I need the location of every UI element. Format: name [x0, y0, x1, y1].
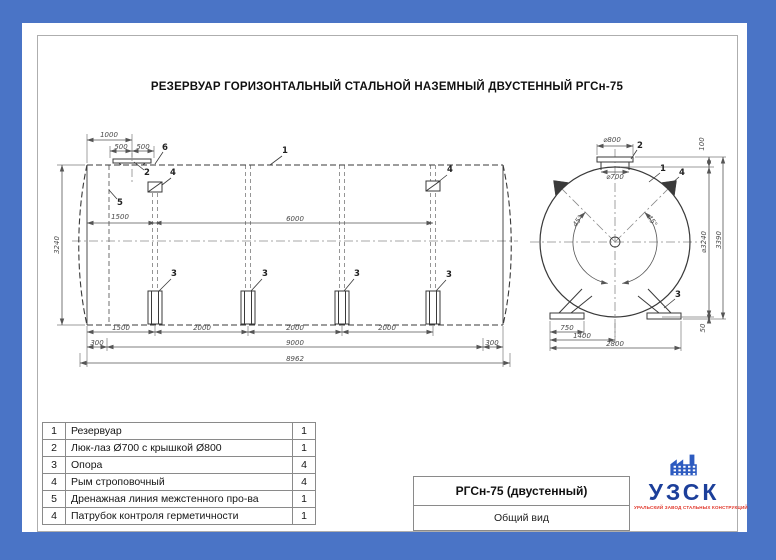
callout-2-manhole: 2 — [144, 168, 150, 178]
dim-d700: ⌀700 — [606, 173, 624, 181]
callout-5-drain-line: 5 — [117, 198, 123, 208]
table-row: 4 Патрубок контроля герметичности 1 — [43, 508, 316, 525]
callout-1-shell: 1 — [282, 146, 288, 156]
part-name: Дренажная линия межстенного про-ва — [66, 491, 293, 508]
dim-1400: 1400 — [573, 332, 591, 340]
dim-300-left: 300 — [90, 339, 103, 347]
dim-500-left: 500 — [114, 143, 127, 151]
part-name: Резервуар — [66, 423, 293, 440]
callout-3-support-4: 3 — [446, 270, 452, 280]
dim-2000-3: 2000 — [378, 324, 396, 332]
drawing-sheet: РЕЗЕРВУАР ГОРИЗОНТАЛЬНЫЙ СТАЛЬНОЙ НАЗЕМН… — [22, 23, 747, 532]
dim-100: 100 — [698, 137, 706, 150]
callout-4-fitting-left: 4 — [170, 168, 176, 178]
dim-750: 750 — [560, 324, 573, 332]
callout-3-support-2: 3 — [262, 269, 268, 279]
fitting-left — [148, 182, 162, 192]
table-row: 5 Дренажная линия межстенного про-ва 1 — [43, 491, 316, 508]
table-row: 4 Рым строповочный 4 — [43, 474, 316, 491]
dim-500-right: 500 — [136, 143, 149, 151]
part-qty: 4 — [293, 474, 316, 491]
callout-3-support-3: 3 — [354, 269, 360, 279]
callout-4-end-lug: 4 — [679, 168, 685, 178]
part-no: 4 — [43, 508, 66, 525]
title-block-model: РГСн-75 (двустенный) — [414, 477, 629, 506]
dim-3240-height: 3240 — [53, 236, 61, 254]
callout-3-support-1: 3 — [171, 269, 177, 279]
company-logo: УЗСК УРАЛЬСКИЙ ЗАВОД СТАЛЬНЫХ КОНСТРУКЦИ… — [634, 453, 734, 511]
part-no: 2 — [43, 440, 66, 457]
dim-d800: ⌀800 — [603, 136, 621, 144]
table-row: 2 Люк-лаз Ø700 с крышкой Ø800 1 — [43, 440, 316, 457]
callout-6-nozzle: 6 — [162, 143, 168, 153]
part-name: Патрубок контроля герметичности — [66, 508, 293, 525]
dim-2000-2: 2000 — [286, 324, 304, 332]
part-qty: 1 — [293, 423, 316, 440]
dim-2800: 2800 — [606, 340, 624, 348]
part-name: Люк-лаз Ø700 с крышкой Ø800 — [66, 440, 293, 457]
callout-1-end-shell: 1 — [660, 164, 666, 174]
title-block: РГСн-75 (двустенный) Общий вид — [413, 476, 630, 531]
screenshot-canvas: РЕЗЕРВУАР ГОРИЗОНТАЛЬНЫЙ СТАЛЬНОЙ НАЗЕМН… — [0, 0, 776, 560]
dim-300-right: 300 — [485, 339, 498, 347]
callout-4-fitting-right: 4 — [447, 165, 453, 175]
callout-3-end-support: 3 — [675, 290, 681, 300]
table-row: 3 Опора 4 — [43, 457, 316, 474]
title-block-view: Общий вид — [414, 506, 629, 530]
supports-end — [550, 289, 681, 319]
leader-lines-side — [109, 152, 447, 291]
dim-1500-top: 1500 — [111, 213, 129, 221]
dim-2000-1: 2000 — [193, 324, 211, 332]
dim-1500-bottom: 1500 — [112, 324, 130, 332]
part-name: Опора — [66, 457, 293, 474]
dim-9000: 9000 — [286, 339, 304, 347]
part-no: 1 — [43, 423, 66, 440]
part-no: 5 — [43, 491, 66, 508]
part-name: Рым строповочный — [66, 474, 293, 491]
dim-3390: 3390 — [715, 231, 723, 249]
dim-6000: 6000 — [286, 215, 304, 223]
parts-table: 1 Резервуар 1 2 Люк-лаз Ø700 с крышкой Ø… — [42, 422, 316, 525]
dim-d3240: ⌀3240 — [700, 231, 708, 253]
callout-2-end-cover: 2 — [637, 141, 643, 151]
tank-outline — [79, 165, 512, 325]
factory-icon — [668, 453, 700, 477]
part-qty: 1 — [293, 491, 316, 508]
supports-side — [148, 291, 440, 324]
dim-8962: 8962 — [286, 355, 304, 363]
logo-name: УЗСК — [634, 481, 734, 504]
part-qty: 4 — [293, 457, 316, 474]
part-qty: 1 — [293, 508, 316, 525]
part-no: 3 — [43, 457, 66, 474]
dim-50: 50 — [699, 324, 707, 333]
part-no: 4 — [43, 474, 66, 491]
table-row: 1 Резервуар 1 — [43, 423, 316, 440]
logo-tagline: УРАЛЬСКИЙ ЗАВОД СТАЛЬНЫХ КОНСТРУКЦИЙ — [634, 506, 734, 511]
dim-1000: 1000 — [100, 131, 118, 139]
part-qty: 1 — [293, 440, 316, 457]
